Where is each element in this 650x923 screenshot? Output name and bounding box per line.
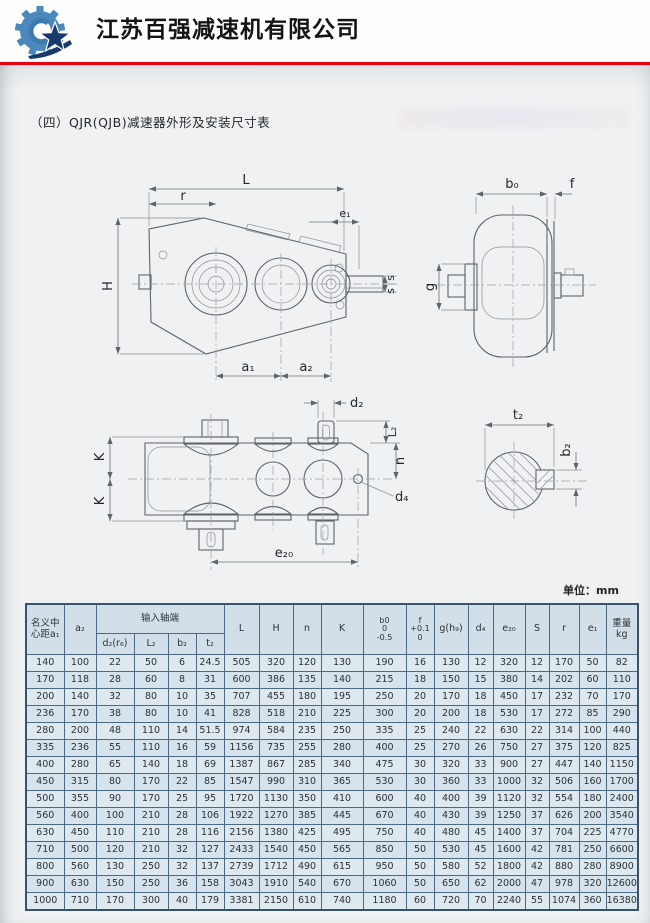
table-cell: 28 bbox=[96, 672, 134, 689]
table-cell: 580 bbox=[434, 859, 468, 876]
table-cell: 2156 bbox=[224, 825, 259, 842]
table-row: 280200481101451.597458423525033525240226… bbox=[26, 723, 638, 740]
page-title: （四）QJR(QJB)减速器外形及安装尺寸表 bbox=[30, 112, 270, 131]
table-cell: 505 bbox=[224, 655, 259, 672]
table-cell: 15 bbox=[468, 672, 493, 689]
col-header-f: f +0.1 0 bbox=[406, 604, 434, 655]
table-cell: 270 bbox=[434, 740, 468, 757]
table-cell: 1540 bbox=[259, 842, 293, 859]
table-cell: 150 bbox=[434, 672, 468, 689]
dim-label-d2: d₂ bbox=[350, 396, 363, 411]
table-cell: 170 bbox=[96, 893, 134, 911]
table-cell: 42 bbox=[525, 859, 549, 876]
table-cell: 180 bbox=[579, 791, 606, 808]
table-cell: 704 bbox=[549, 825, 579, 842]
table-cell: 1600 bbox=[493, 842, 525, 859]
table-cell: 140 bbox=[26, 655, 64, 672]
col-header-n: n bbox=[293, 604, 321, 655]
table-cell: 210 bbox=[293, 706, 321, 723]
table-cell: 50 bbox=[579, 655, 606, 672]
col-header-b0: b0 0 -0.5 bbox=[363, 604, 406, 655]
table-cell: 32 bbox=[96, 689, 134, 706]
table-cell: 300 bbox=[363, 706, 406, 723]
table-cell: 6600 bbox=[606, 842, 638, 859]
table-cell: 450 bbox=[64, 825, 96, 842]
dim-label-H: H bbox=[101, 281, 116, 291]
faint-watermark bbox=[400, 108, 630, 128]
table-cell: 140 bbox=[134, 757, 168, 774]
table-row: 2361703880104182851821022530020200185301… bbox=[26, 706, 638, 723]
table-cell: 106 bbox=[196, 808, 224, 825]
table-cell: 33 bbox=[468, 774, 493, 791]
table-cell: 137 bbox=[196, 859, 224, 876]
table-cell: 195 bbox=[321, 689, 363, 706]
table-cell: 27 bbox=[525, 740, 549, 757]
table-cell: 500 bbox=[26, 791, 64, 808]
table-cell: 60 bbox=[134, 672, 168, 689]
table-cell: 400 bbox=[434, 791, 468, 808]
table-cell: 1074 bbox=[549, 893, 579, 911]
table-row: 8005601302503213727391712490615950505805… bbox=[26, 859, 638, 876]
col-header-L2: L₂ bbox=[134, 634, 168, 655]
table-cell: 825 bbox=[606, 740, 638, 757]
table-cell: 22 bbox=[468, 723, 493, 740]
table-cell: 35 bbox=[196, 689, 224, 706]
table-cell: 2240 bbox=[493, 893, 525, 911]
dim-label-K-top: K bbox=[93, 452, 108, 461]
table-cell: 1910 bbox=[259, 876, 293, 893]
table-cell: 560 bbox=[64, 859, 96, 876]
table-cell: 720 bbox=[434, 893, 468, 911]
table-cell: 200 bbox=[434, 706, 468, 723]
table-cell: 36 bbox=[168, 876, 196, 893]
table-cell: 45 bbox=[468, 842, 493, 859]
table-cell: 210 bbox=[134, 808, 168, 825]
dim-label-a1: a₁ bbox=[241, 360, 254, 375]
table-cell: 584 bbox=[259, 723, 293, 740]
table-cell: 45 bbox=[468, 825, 493, 842]
table-cell: 1547 bbox=[224, 774, 259, 791]
table-cell: 506 bbox=[549, 774, 579, 791]
scan-artifact-band bbox=[0, 65, 650, 91]
dim-label-b0: b₀ bbox=[505, 177, 518, 192]
table-cell: 320 bbox=[579, 876, 606, 893]
table-cell: 85 bbox=[196, 774, 224, 791]
table-cell: 630 bbox=[26, 825, 64, 842]
table-cell: 180 bbox=[293, 689, 321, 706]
table-cell: 340 bbox=[321, 757, 363, 774]
table-cell: 450 bbox=[493, 689, 525, 706]
table-cell: 80 bbox=[96, 774, 134, 791]
table-cell: 360 bbox=[579, 893, 606, 911]
table-cell: 70 bbox=[579, 689, 606, 706]
table-row: 3352365511016591156735255280400252702675… bbox=[26, 740, 638, 757]
table-cell: 170 bbox=[434, 689, 468, 706]
table-cell: 600 bbox=[224, 672, 259, 689]
col-header-d2r6: d₂(r₆) bbox=[96, 634, 134, 655]
table-cell: 190 bbox=[363, 655, 406, 672]
table-cell: 2739 bbox=[224, 859, 259, 876]
table-cell: 100 bbox=[64, 655, 96, 672]
table-cell: 110 bbox=[134, 723, 168, 740]
table-cell: 25 bbox=[168, 791, 196, 808]
table-cell: 1060 bbox=[363, 876, 406, 893]
table-cell: 24.5 bbox=[196, 655, 224, 672]
table-cell: 170 bbox=[26, 672, 64, 689]
col-header-b2: b₂ bbox=[168, 634, 196, 655]
table-cell: 22 bbox=[96, 655, 134, 672]
table-cell: 18 bbox=[168, 757, 196, 774]
table-cell: 40 bbox=[168, 893, 196, 911]
table-cell: 2000 bbox=[493, 876, 525, 893]
table-cell: 440 bbox=[606, 723, 638, 740]
table-cell: 530 bbox=[493, 706, 525, 723]
table-cell: 90 bbox=[96, 791, 134, 808]
table-cell: 120 bbox=[293, 655, 321, 672]
table-cell: 236 bbox=[26, 706, 64, 723]
table-cell: 18 bbox=[406, 672, 434, 689]
table-cell: 130 bbox=[321, 655, 363, 672]
table-cell: 12 bbox=[525, 655, 549, 672]
table-body: 1401002250624.55053201201301901613012320… bbox=[26, 655, 638, 911]
table-cell: 430 bbox=[434, 808, 468, 825]
table-cell: 272 bbox=[549, 706, 579, 723]
table-cell: 3043 bbox=[224, 876, 259, 893]
table-cell: 1156 bbox=[224, 740, 259, 757]
table-cell: 540 bbox=[293, 876, 321, 893]
table-cell: 974 bbox=[224, 723, 259, 740]
table-cell: 500 bbox=[64, 842, 96, 859]
table-cell: 740 bbox=[321, 893, 363, 911]
table-cell: 4770 bbox=[606, 825, 638, 842]
table-cell: 20 bbox=[406, 706, 434, 723]
table-cell: 560 bbox=[26, 808, 64, 825]
table-cell: 30 bbox=[406, 757, 434, 774]
table-cell: 170 bbox=[606, 689, 638, 706]
table-cell: 8900 bbox=[606, 859, 638, 876]
table-cell: 25 bbox=[406, 723, 434, 740]
table-cell: 3381 bbox=[224, 893, 259, 911]
table-cell: 50 bbox=[406, 876, 434, 893]
table-cell: 200 bbox=[64, 723, 96, 740]
table-cell: 40 bbox=[406, 791, 434, 808]
table-cell: 2400 bbox=[606, 791, 638, 808]
table-cell: 385 bbox=[293, 808, 321, 825]
table-cell: 250 bbox=[134, 859, 168, 876]
table-cell: 1000 bbox=[26, 893, 64, 911]
col-group-input-shaft: 输入轴端 bbox=[96, 604, 224, 634]
dim-label-t2: t₂ bbox=[513, 408, 523, 423]
table-cell: 37 bbox=[525, 808, 549, 825]
table-cell: 170 bbox=[549, 655, 579, 672]
shaft-section-drawing: t₂ b₂ bbox=[448, 390, 648, 582]
table-cell: 386 bbox=[259, 672, 293, 689]
table-cell: 670 bbox=[321, 876, 363, 893]
table-cell: 6 bbox=[168, 655, 196, 672]
table-cell: 445 bbox=[321, 808, 363, 825]
table-cell: 27 bbox=[525, 757, 549, 774]
table-cell: 85 bbox=[579, 706, 606, 723]
table-cell: 495 bbox=[321, 825, 363, 842]
table-cell: 170 bbox=[134, 791, 168, 808]
col-header-a1: 名义中 心距a₁ bbox=[26, 604, 64, 655]
table-cell: 600 bbox=[363, 791, 406, 808]
table-cell: 232 bbox=[549, 689, 579, 706]
table-cell: 626 bbox=[549, 808, 579, 825]
col-header-weight: 重量kg bbox=[606, 604, 638, 655]
table-cell: 280 bbox=[26, 723, 64, 740]
table-cell: 22 bbox=[168, 774, 196, 791]
table-cell: 225 bbox=[579, 825, 606, 842]
table-cell: 1700 bbox=[606, 774, 638, 791]
table-cell: 250 bbox=[579, 842, 606, 859]
table-cell: 380 bbox=[493, 672, 525, 689]
dim-label-e20: e₂₀ bbox=[275, 546, 293, 561]
table-cell: 42 bbox=[525, 842, 549, 859]
table-cell: 18 bbox=[468, 706, 493, 723]
table-cell: 400 bbox=[363, 740, 406, 757]
front-view-drawing: L r e₁ H s s a₁ a₂ bbox=[96, 169, 406, 391]
table-cell: 22 bbox=[525, 723, 549, 740]
catalog-page: 江苏百强减速机有限公司 （四）QJR(QJB)减速器外形及安装尺寸表 L r bbox=[0, 0, 650, 923]
dim-label-n: n bbox=[393, 457, 408, 465]
table-cell: 2433 bbox=[224, 842, 259, 859]
dim-label-r: r bbox=[180, 189, 186, 204]
col-header-e20: e₂₀ bbox=[493, 604, 525, 655]
table-cell: 235 bbox=[293, 723, 321, 740]
table-cell: 1180 bbox=[363, 893, 406, 911]
col-header-e1: e₁ bbox=[579, 604, 606, 655]
table-row: 1000710170300401793381215061074011806072… bbox=[26, 893, 638, 911]
company-name: 江苏百强减速机有限公司 bbox=[96, 0, 360, 62]
top-view-drawing: d₂ L₂ n d₄ K K e₂₀ bbox=[88, 390, 433, 585]
table-cell: 80 bbox=[134, 706, 168, 723]
table-cell: 990 bbox=[259, 774, 293, 791]
table-cell: 610 bbox=[293, 893, 321, 911]
table-cell: 28 bbox=[168, 808, 196, 825]
table-cell: 400 bbox=[64, 808, 96, 825]
table-cell: 110 bbox=[96, 825, 134, 842]
table-cell: 135 bbox=[293, 672, 321, 689]
table-cell: 32 bbox=[168, 842, 196, 859]
col-header-H: H bbox=[259, 604, 293, 655]
table-cell: 160 bbox=[579, 774, 606, 791]
table-row: 9006301502503615830431910540670106050650… bbox=[26, 876, 638, 893]
table-cell: 100 bbox=[579, 723, 606, 740]
table-cell: 280 bbox=[579, 859, 606, 876]
table-cell: 18 bbox=[468, 689, 493, 706]
col-header-t2: t₂ bbox=[196, 634, 224, 655]
table-cell: 40 bbox=[406, 825, 434, 842]
table-cell: 518 bbox=[259, 706, 293, 723]
table-cell: 118 bbox=[64, 672, 96, 689]
dim-label-f: f bbox=[570, 177, 575, 192]
table-cell: 335 bbox=[26, 740, 64, 757]
table-cell: 670 bbox=[363, 808, 406, 825]
table-cell: 110 bbox=[134, 740, 168, 757]
table-cell: 250 bbox=[321, 723, 363, 740]
table-cell: 170 bbox=[64, 706, 96, 723]
table-cell: 158 bbox=[196, 876, 224, 893]
table-cell: 750 bbox=[363, 825, 406, 842]
table-cell: 70 bbox=[468, 893, 493, 911]
dim-label-L2: L₂ bbox=[386, 427, 399, 438]
table-cell: 80 bbox=[134, 689, 168, 706]
table-cell: 59 bbox=[196, 740, 224, 757]
table-cell: 615 bbox=[321, 859, 363, 876]
table-cell: 314 bbox=[549, 723, 579, 740]
table-cell: 375 bbox=[549, 740, 579, 757]
table-cell: 1400 bbox=[493, 825, 525, 842]
col-header-d4: d₄ bbox=[468, 604, 493, 655]
dim-label-a2: a₂ bbox=[299, 360, 312, 375]
table-cell: 28 bbox=[168, 825, 196, 842]
table-cell: 530 bbox=[363, 774, 406, 791]
table-cell: 202 bbox=[549, 672, 579, 689]
table-cell: 1720 bbox=[224, 791, 259, 808]
table-cell: 47 bbox=[525, 876, 549, 893]
table-cell: 365 bbox=[321, 774, 363, 791]
table-cell: 39 bbox=[468, 808, 493, 825]
table-cell: 315 bbox=[64, 774, 96, 791]
table-cell: 450 bbox=[293, 842, 321, 859]
table-cell: 120 bbox=[96, 842, 134, 859]
table-cell: 110 bbox=[606, 672, 638, 689]
table-cell: 8 bbox=[168, 672, 196, 689]
table-cell: 447 bbox=[549, 757, 579, 774]
table-cell: 320 bbox=[259, 655, 293, 672]
table-cell: 1922 bbox=[224, 808, 259, 825]
table-cell: 12 bbox=[468, 655, 493, 672]
table-cell: 1380 bbox=[259, 825, 293, 842]
table-cell: 50 bbox=[134, 655, 168, 672]
table-cell: 900 bbox=[26, 876, 64, 893]
col-header-a2: a₂ bbox=[64, 604, 96, 655]
table-cell: 1120 bbox=[493, 791, 525, 808]
dimension-table: 名义中 心距a₁ a₂ 输入轴端 L H n K b0 0 -0.5 f +0.… bbox=[25, 603, 639, 911]
table-cell: 82 bbox=[606, 655, 638, 672]
table-cell: 490 bbox=[293, 859, 321, 876]
table-cell: 31 bbox=[196, 672, 224, 689]
table-cell: 2150 bbox=[259, 893, 293, 911]
table-cell: 69 bbox=[196, 757, 224, 774]
dim-label-e1: e₁ bbox=[339, 207, 350, 220]
table-cell: 310 bbox=[293, 774, 321, 791]
dim-label-s-top: s bbox=[384, 275, 397, 281]
table-row: 1701182860831600386135140215181501538014… bbox=[26, 672, 638, 689]
table-cell: 425 bbox=[293, 825, 321, 842]
table-row: 1401002250624.55053201201301901613012320… bbox=[26, 655, 638, 672]
table-cell: 120 bbox=[579, 740, 606, 757]
table-cell: 51.5 bbox=[196, 723, 224, 740]
table-cell: 32 bbox=[525, 791, 549, 808]
table-row: 7105001202103212724331540450565850505304… bbox=[26, 842, 638, 859]
table-cell: 200 bbox=[26, 689, 64, 706]
table-cell: 140 bbox=[64, 689, 96, 706]
table-row: 4002806514018691387867285340475303203390… bbox=[26, 757, 638, 774]
table-cell: 50 bbox=[406, 859, 434, 876]
table-cell: 250 bbox=[363, 689, 406, 706]
table-row: 5003559017025951720113035041060040400391… bbox=[26, 791, 638, 808]
table-cell: 320 bbox=[493, 655, 525, 672]
col-header-L: L bbox=[224, 604, 259, 655]
table-cell: 850 bbox=[363, 842, 406, 859]
table-cell: 290 bbox=[606, 706, 638, 723]
table-cell: 480 bbox=[434, 825, 468, 842]
table-cell: 630 bbox=[64, 876, 96, 893]
table-cell: 25 bbox=[406, 740, 434, 757]
table-cell: 130 bbox=[96, 859, 134, 876]
table-cell: 16 bbox=[168, 740, 196, 757]
table-cell: 20 bbox=[406, 689, 434, 706]
table-cell: 33 bbox=[468, 757, 493, 774]
table-cell: 285 bbox=[293, 757, 321, 774]
dim-label-b2: b₂ bbox=[559, 443, 574, 456]
company-logo-gear-star-icon bbox=[12, 2, 76, 62]
table-cell: 350 bbox=[293, 791, 321, 808]
table-cell: 707 bbox=[224, 689, 259, 706]
table-cell: 1250 bbox=[493, 808, 525, 825]
table-cell: 140 bbox=[579, 757, 606, 774]
table-cell: 750 bbox=[493, 740, 525, 757]
table-cell: 30 bbox=[406, 774, 434, 791]
table-cell: 12600 bbox=[606, 876, 638, 893]
header-bar: 江苏百强减速机有限公司 bbox=[0, 0, 650, 62]
table-cell: 800 bbox=[26, 859, 64, 876]
col-header-S: S bbox=[525, 604, 549, 655]
unit-label: 单位：mm bbox=[563, 582, 619, 598]
table-cell: 16380 bbox=[606, 893, 638, 911]
table-cell: 95 bbox=[196, 791, 224, 808]
table-cell: 200 bbox=[579, 808, 606, 825]
table-cell: 38 bbox=[96, 706, 134, 723]
table-cell: 280 bbox=[321, 740, 363, 757]
table-cell: 60 bbox=[579, 672, 606, 689]
table-cell: 455 bbox=[259, 689, 293, 706]
table-cell: 867 bbox=[259, 757, 293, 774]
table-cell: 14 bbox=[168, 723, 196, 740]
table-cell: 475 bbox=[363, 757, 406, 774]
table-cell: 630 bbox=[493, 723, 525, 740]
table-cell: 52 bbox=[468, 859, 493, 876]
table-cell: 16 bbox=[406, 655, 434, 672]
col-header-K: K bbox=[321, 604, 363, 655]
dim-label-g: g bbox=[424, 283, 438, 291]
table-cell: 37 bbox=[525, 825, 549, 842]
table-cell: 710 bbox=[64, 893, 96, 911]
table-cell: 39 bbox=[468, 791, 493, 808]
table-cell: 179 bbox=[196, 893, 224, 911]
table-cell: 14 bbox=[525, 672, 549, 689]
table-row: 2001403280103570745518019525020170184501… bbox=[26, 689, 638, 706]
table-cell: 127 bbox=[196, 842, 224, 859]
table-cell: 410 bbox=[321, 791, 363, 808]
table-cell: 554 bbox=[549, 791, 579, 808]
table-cell: 32 bbox=[525, 774, 549, 791]
table-cell: 50 bbox=[406, 842, 434, 859]
table-cell: 62 bbox=[468, 876, 493, 893]
table-cell: 781 bbox=[549, 842, 579, 859]
table-cell: 450 bbox=[26, 774, 64, 791]
table-cell: 710 bbox=[26, 842, 64, 859]
dim-label-L: L bbox=[242, 173, 250, 188]
table-cell: 17 bbox=[525, 689, 549, 706]
table-cell: 225 bbox=[321, 706, 363, 723]
table-cell: 3540 bbox=[606, 808, 638, 825]
table-cell: 17 bbox=[525, 706, 549, 723]
table-cell: 130 bbox=[434, 655, 468, 672]
table-cell: 60 bbox=[406, 893, 434, 911]
